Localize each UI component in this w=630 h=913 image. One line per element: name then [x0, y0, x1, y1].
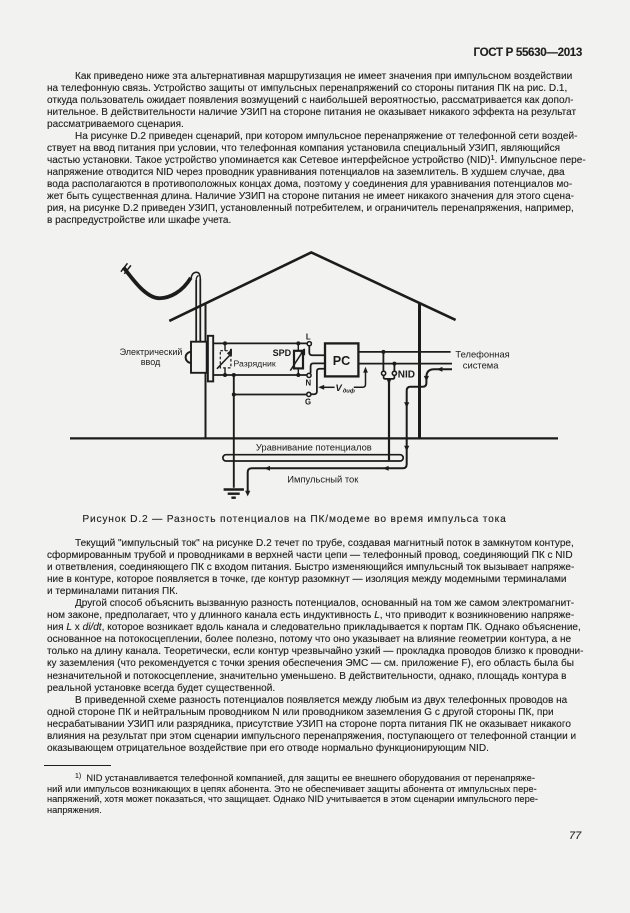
svg-text:Телефонная: Телефонная	[455, 349, 509, 360]
svg-text:система: система	[463, 359, 499, 370]
svg-text:Уравнивание потенциалов: Уравнивание потенциалов	[256, 441, 372, 452]
svg-text:N: N	[305, 379, 311, 388]
svg-text:G: G	[305, 398, 311, 407]
svg-text:V: V	[336, 382, 343, 393]
svg-text:Импульсный ток: Импульсный ток	[287, 473, 359, 484]
svg-text:Электрический: Электрический	[120, 347, 183, 357]
svg-text:Разрядник: Разрядник	[234, 358, 276, 368]
svg-text:L: L	[306, 333, 311, 342]
svg-text:SPD: SPD	[273, 348, 292, 358]
svg-text:ввод: ввод	[141, 357, 161, 367]
svg-text:NID: NID	[398, 369, 415, 380]
svg-text:PC: PC	[333, 354, 351, 368]
svg-text:диф: диф	[343, 388, 355, 395]
